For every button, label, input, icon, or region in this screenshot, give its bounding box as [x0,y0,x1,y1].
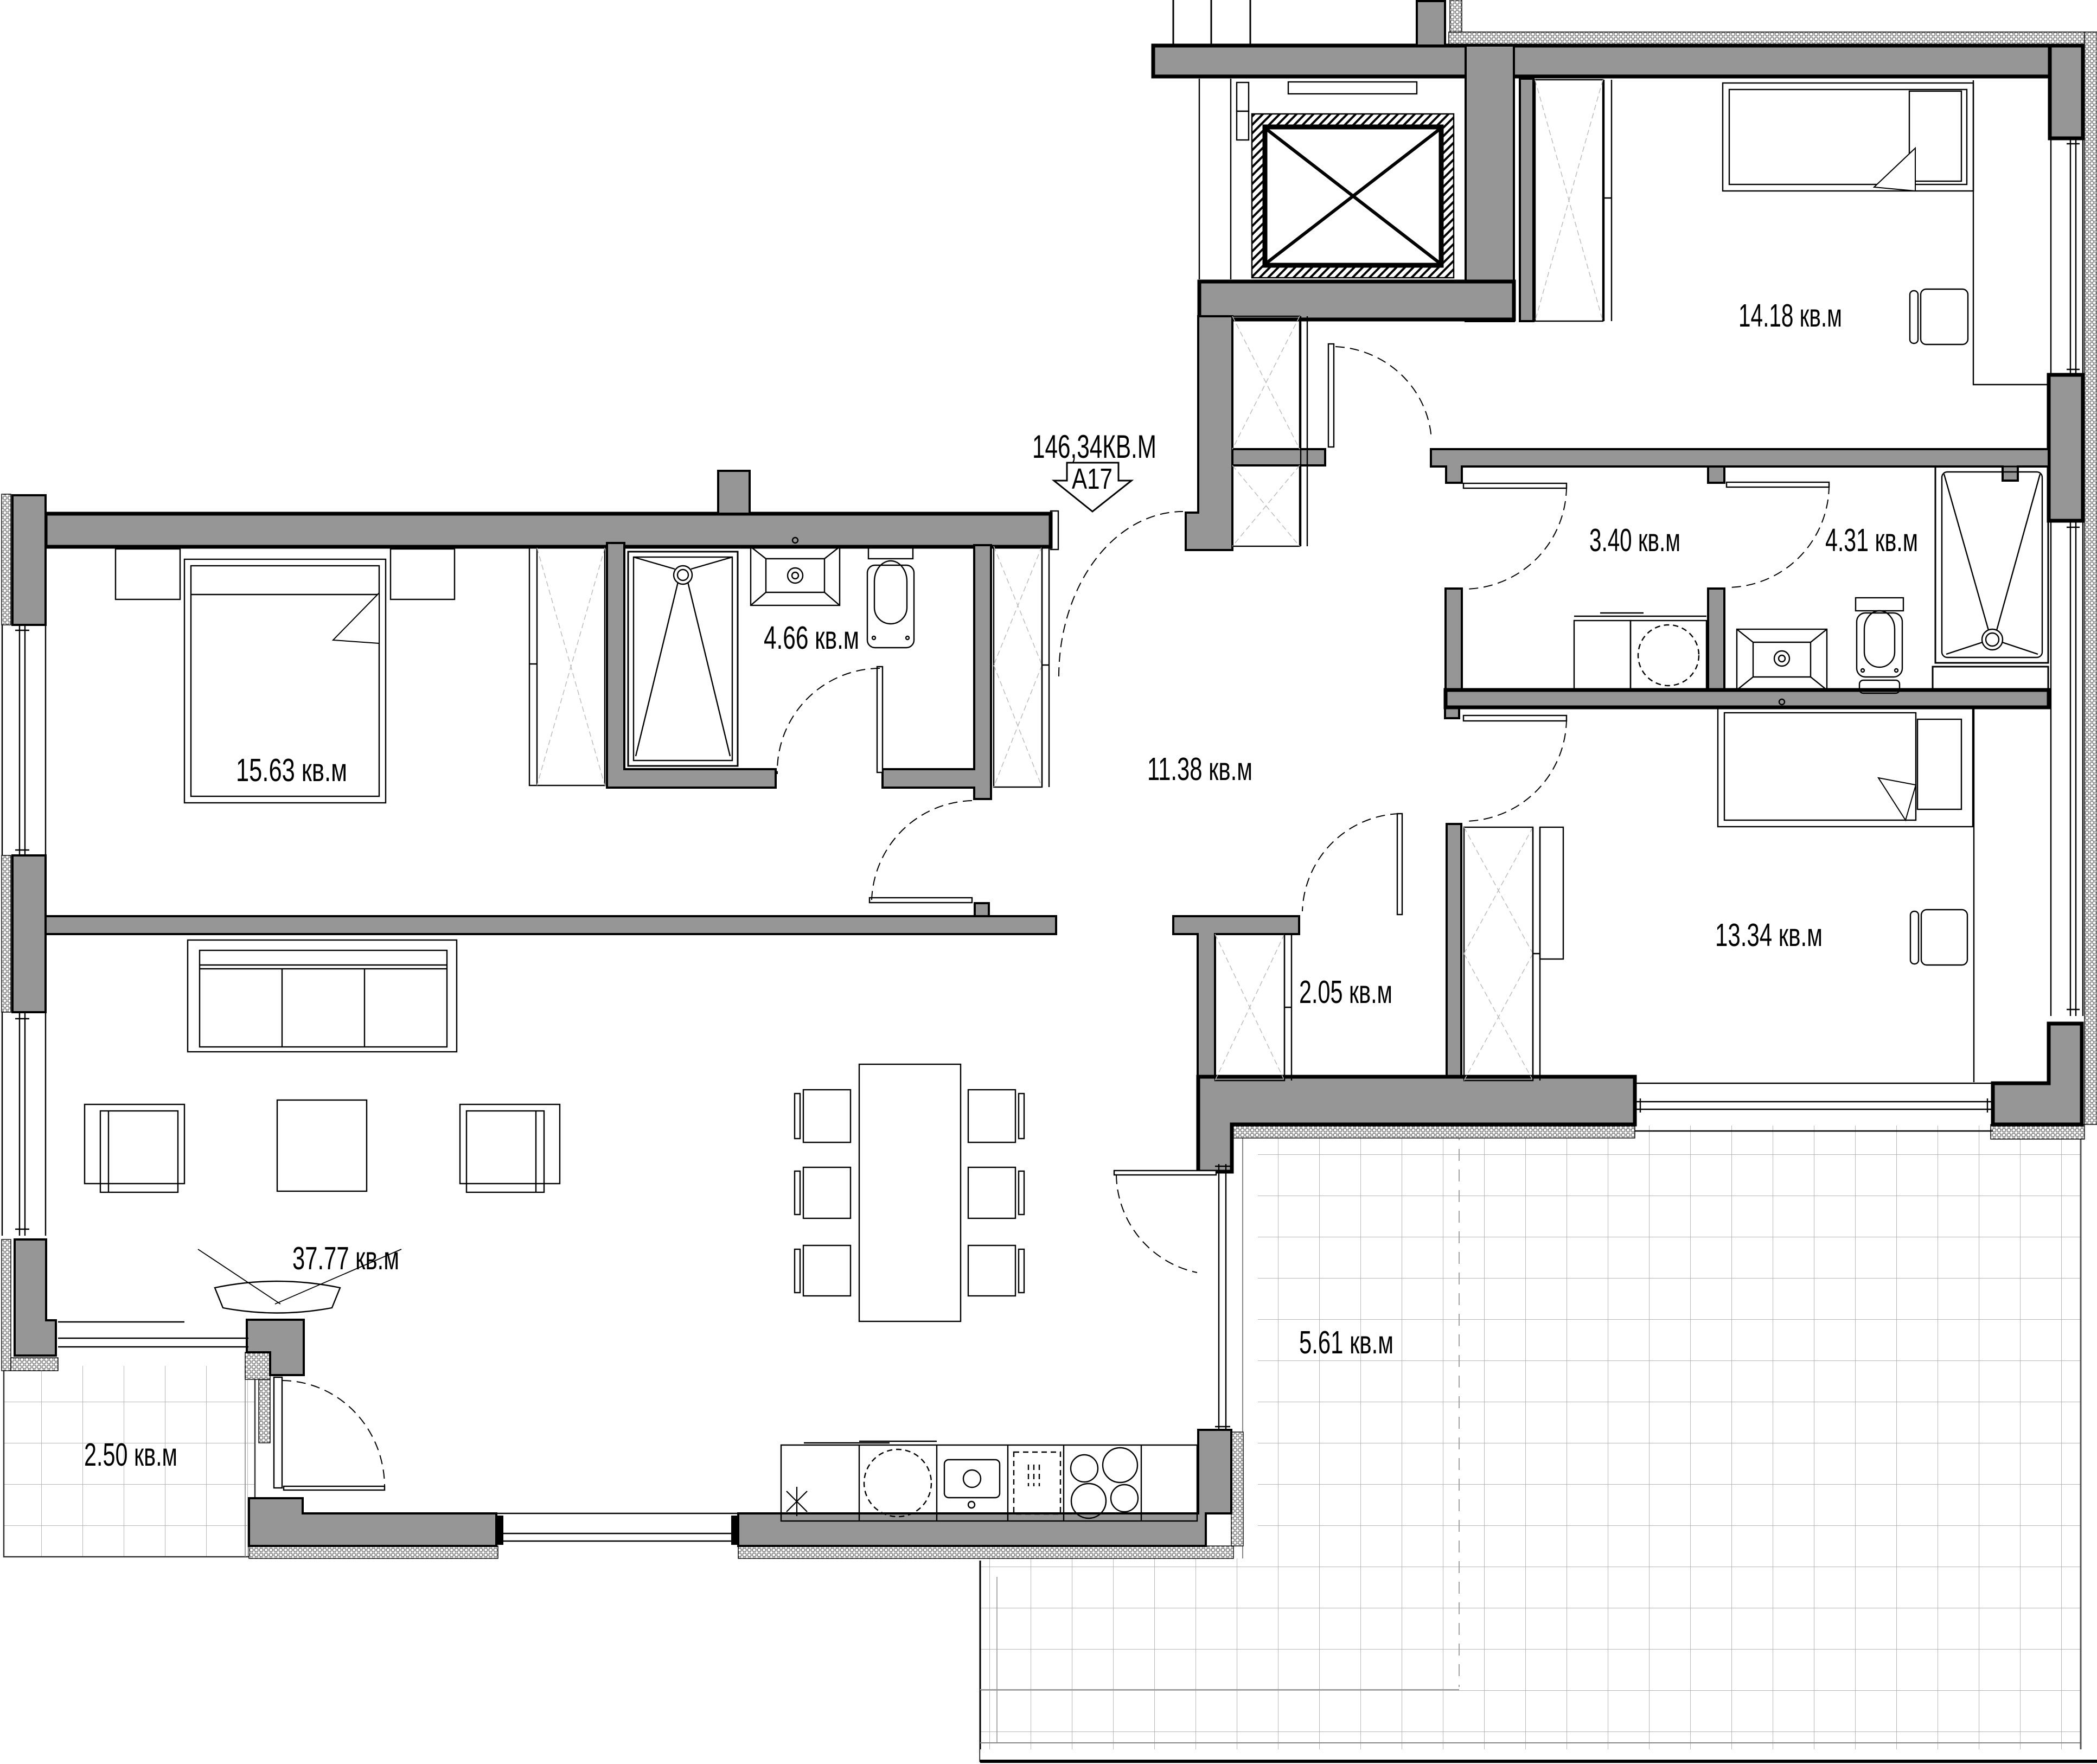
svg-text:2.05 кв.м: 2.05 кв.м [1299,974,1392,1010]
svg-text:3.40 кв.м: 3.40 кв.м [1589,522,1680,558]
svg-text:14.18 кв.м: 14.18 кв.м [1738,298,1842,334]
svg-text:15.63 кв.м: 15.63 кв.м [236,752,347,788]
svg-text:13.34 кв.м: 13.34 кв.м [1715,917,1823,953]
svg-text:11.38 кв.м: 11.38 кв.м [1147,751,1252,787]
svg-text:А17: А17 [1072,463,1113,495]
svg-text:37.77 кв.м: 37.77 кв.м [292,1241,399,1276]
svg-text:4.66 кв.м: 4.66 кв.м [764,620,859,656]
svg-text:5.61 кв.м: 5.61 кв.м [1299,1325,1393,1360]
svg-text:4.31 кв.м: 4.31 кв.м [1825,522,1918,558]
svg-text:2.50 кв.м: 2.50 кв.м [84,1437,177,1473]
svg-text:146,34КВ.М: 146,34КВ.М [1032,429,1156,465]
